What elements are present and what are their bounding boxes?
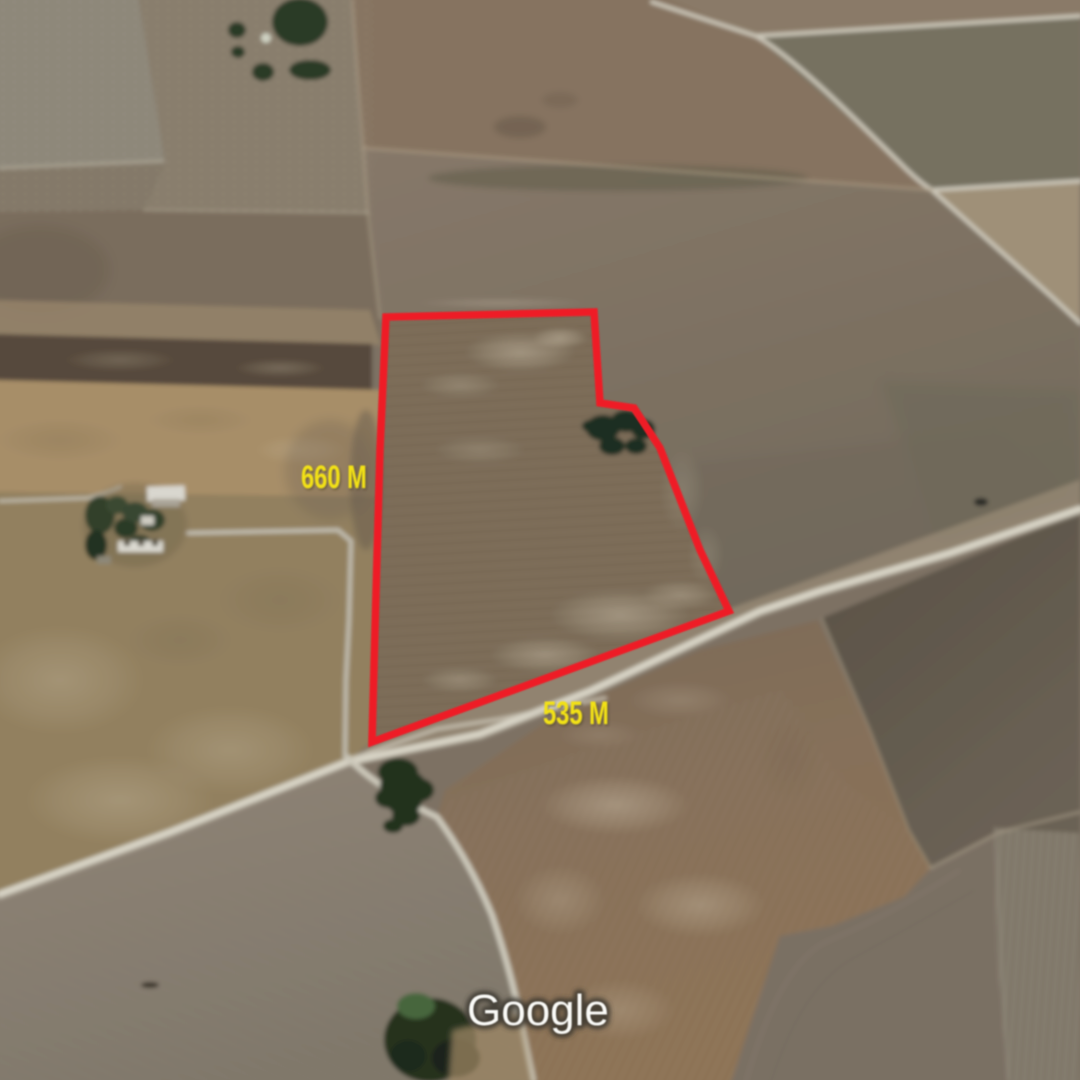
svg-text:Google: Google [467, 986, 609, 1035]
svg-text:535 M: 535 M [543, 696, 609, 731]
svg-text:660 M: 660 M [301, 460, 367, 495]
